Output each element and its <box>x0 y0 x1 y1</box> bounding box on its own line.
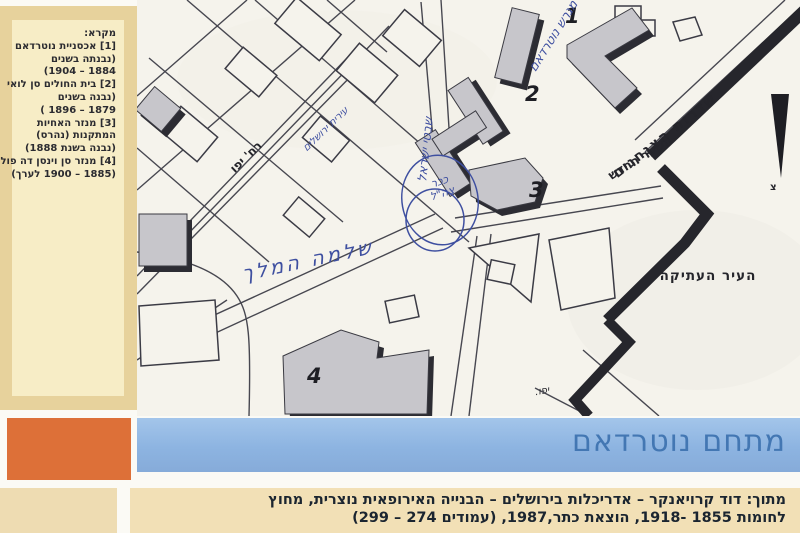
title-bar: מתחם נוטרדאם <box>137 418 800 472</box>
legend-line: מקרא: <box>16 28 116 41</box>
legend-line: [4] מנזר סן וינסן דה פול <box>16 156 116 169</box>
caption-line-2: לחומות 1855 -1918, הוצאת כתר,1987, (עמוד… <box>138 510 786 528</box>
legend-line: 1879 – 1896 ) <box>16 105 116 118</box>
legend-line: (נבנתה בשנים <box>16 54 116 67</box>
legend-panel: מקרא: [1] אכסניית נוטרדאם (נבנתה בשנים 1… <box>12 20 124 396</box>
building-number-4: 4 <box>307 364 322 388</box>
orange-accent-block <box>7 418 131 480</box>
legend-line: 1884 – 1904) <box>16 66 116 79</box>
caption-line-1: מתוך: דוד קרויאנקר – אדריכלות בירושלים –… <box>138 492 786 510</box>
map-drawing <box>137 0 800 416</box>
scanned-map-page: מקרא: [1] אכסניית נוטרדאם (נבנתה בשנים 1… <box>0 0 800 533</box>
bottom-left-tan-block <box>0 488 117 533</box>
legend-line: (1885 – 1900 לערך) <box>16 169 116 182</box>
legend-line: (נבנה בשנים <box>16 92 116 105</box>
legend-line: (נבנה בשנת 1888) <box>16 143 116 156</box>
map-area: שדרות הצנחנים השער החדש העיר העתיקה רח' … <box>137 0 800 416</box>
legend-column: מקרא: [1] אכסניית נוטרדאם (נבנתה בשנים 1… <box>0 6 137 410</box>
legend-line: המתקנות (נהרס) <box>16 130 116 143</box>
caption-band: מתוך: דוד קרויאנקר – אדריכלות בירושלים –… <box>130 488 800 533</box>
legend-line: [2] בית החולים סן לואי <box>16 79 116 92</box>
legend-line: [1] אכסניית נוטרדאם <box>16 41 116 54</box>
north-arrow-icon <box>771 94 789 178</box>
legend-line: [3] מנזר האחיות <box>16 118 116 131</box>
page-title: מתחם נוטרדאם <box>572 424 786 459</box>
legend-text-block: מקרא: [1] אכסניית נוטרדאם (נבנתה בשנים 1… <box>12 20 124 182</box>
building-number-3: 3 <box>529 178 544 202</box>
source-caption: מתוך: דוד קרויאנקר – אדריכלות בירושלים –… <box>130 488 800 527</box>
north-letter: צ <box>770 182 777 193</box>
label-old-city: העיר העתיקה <box>656 268 760 284</box>
